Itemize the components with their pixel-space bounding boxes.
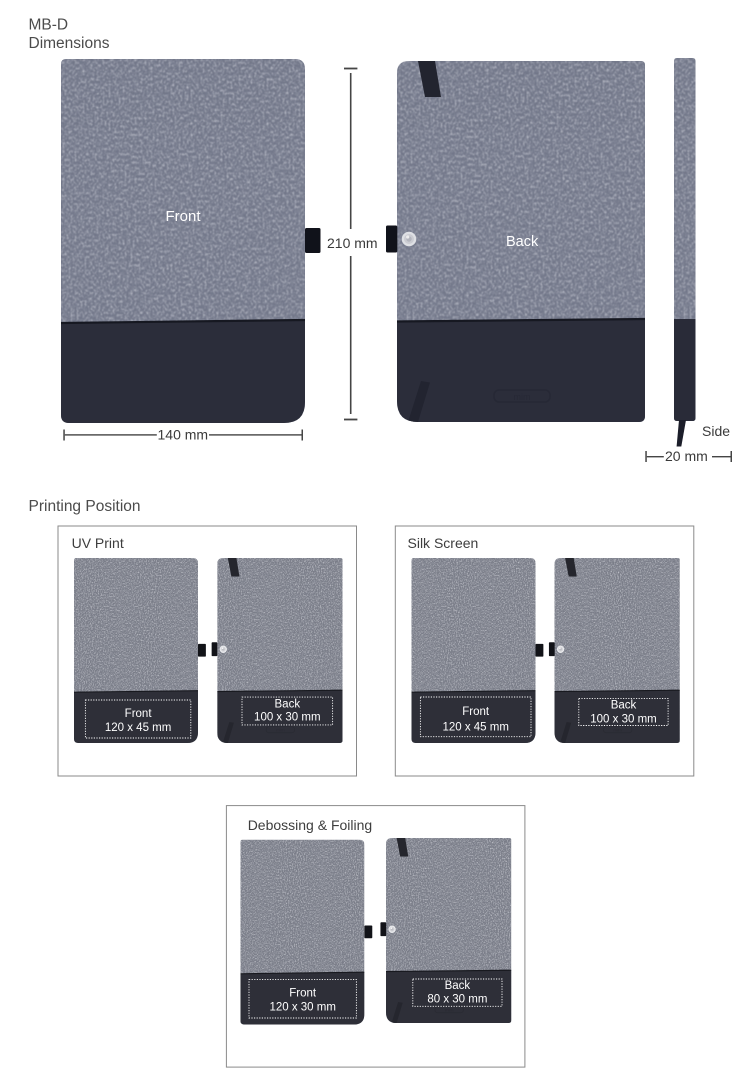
svg-text:Silk Screen: Silk Screen [408, 535, 479, 551]
svg-text:80 x 30 mm: 80 x 30 mm [427, 994, 487, 1006]
svg-text:Front: Front [289, 987, 317, 999]
svg-text:Back: Back [506, 234, 539, 250]
svg-text:Debossing & Foiling: Debossing & Foiling [248, 817, 373, 833]
svg-text:UV Print: UV Print [72, 535, 124, 551]
svg-text:Front: Front [462, 706, 490, 718]
svg-text:20 mm: 20 mm [665, 448, 708, 464]
svg-text:210 mm: 210 mm [327, 235, 378, 251]
svg-text:120 x 45 mm: 120 x 45 mm [105, 722, 171, 734]
svg-text:140 mm: 140 mm [158, 427, 209, 443]
svg-text:Dimensions: Dimensions [29, 35, 110, 52]
svg-text:Front: Front [125, 708, 153, 720]
svg-text:120 x 30 mm: 120 x 30 mm [269, 1001, 335, 1013]
svg-text:Back: Back [611, 700, 637, 712]
svg-text:100 x 30 mm: 100 x 30 mm [590, 713, 656, 725]
svg-text:Back: Back [445, 980, 471, 992]
svg-text:100 x 30 mm: 100 x 30 mm [254, 712, 320, 724]
svg-text:MB-D: MB-D [29, 17, 69, 34]
svg-text:Printing Position: Printing Position [29, 498, 141, 515]
svg-text:Back: Back [275, 699, 301, 711]
svg-text:Side: Side [702, 423, 730, 439]
svg-text:Front: Front [165, 208, 201, 225]
svg-text:120 x 45 mm: 120 x 45 mm [442, 722, 508, 734]
